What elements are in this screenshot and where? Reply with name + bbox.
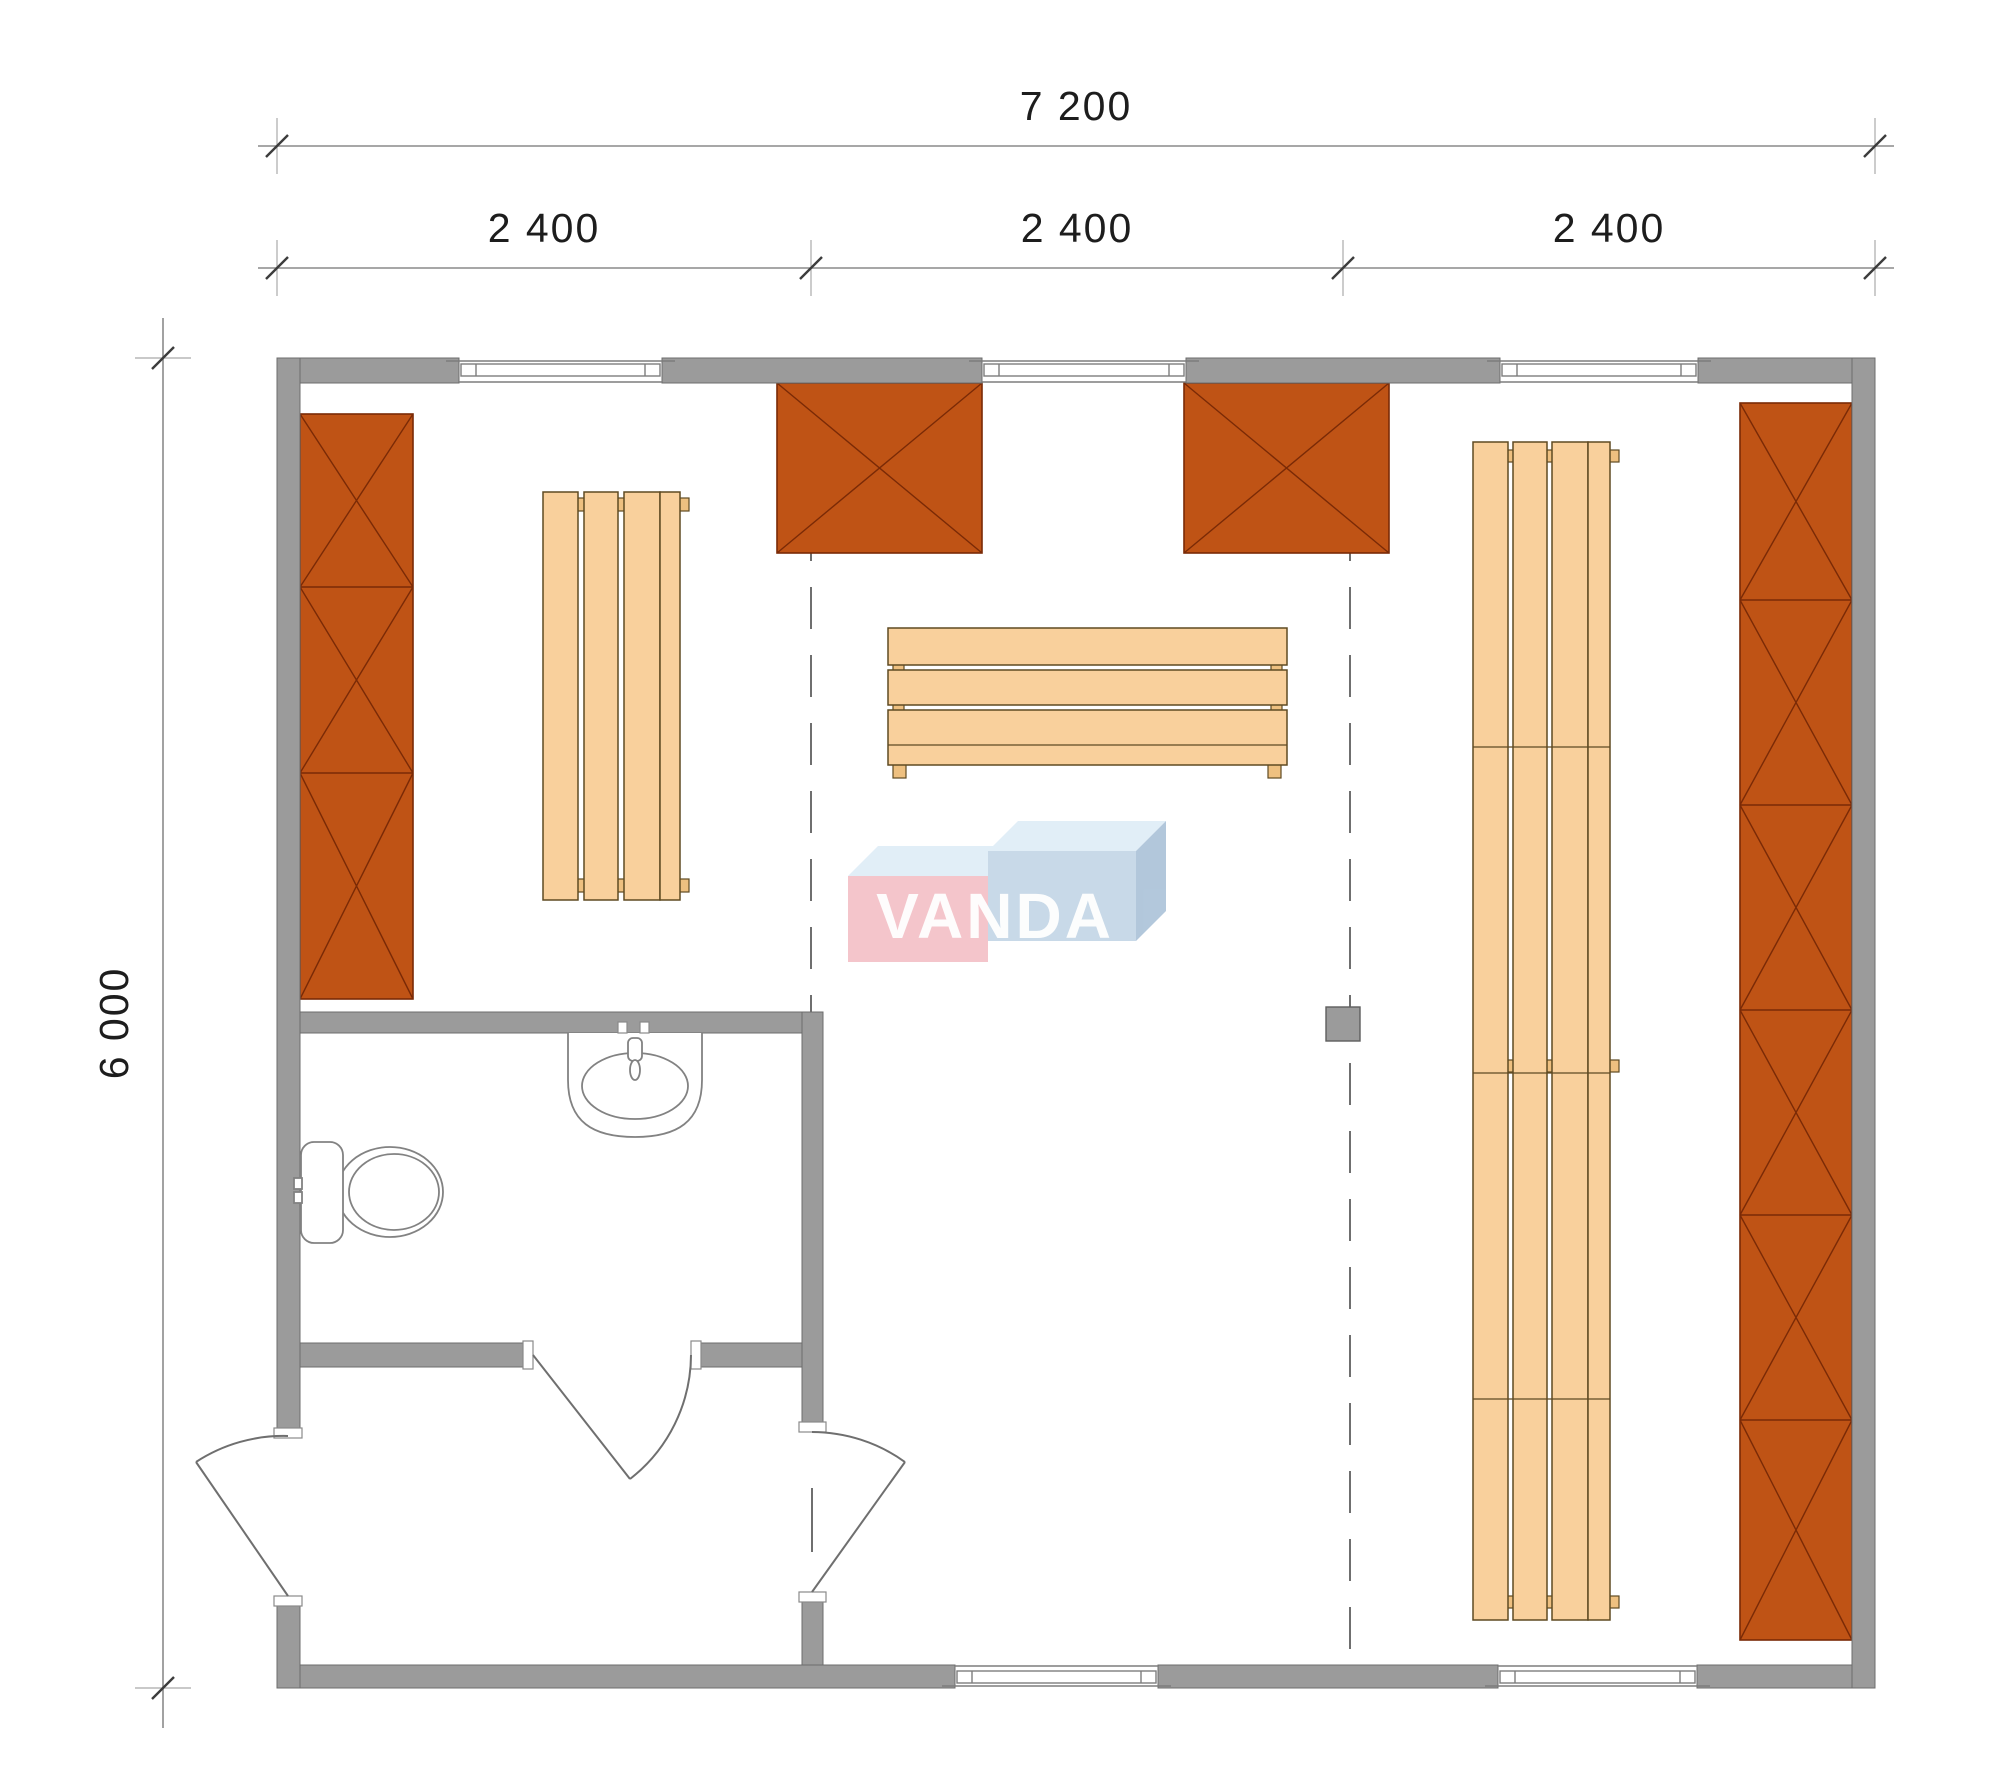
dimension-width-segments: 2 400 2 400 2 400 [258, 205, 1894, 296]
sink-tap-mark-1 [618, 1022, 627, 1033]
heater-box-1 [777, 383, 982, 553]
bench-left [543, 492, 689, 900]
sink-faucet-spout [630, 1060, 640, 1080]
dim-label-segment-1: 2 400 [488, 205, 601, 251]
window-bottom-2 [1485, 1666, 1710, 1686]
toilet-tank [301, 1142, 343, 1243]
wall-bathroom-bottom-left [300, 1343, 523, 1367]
jamb-entrance-bottom [274, 1596, 302, 1606]
stove-post [1326, 1007, 1360, 1041]
wall-partition-upper [802, 1012, 823, 1432]
wall-top-2 [662, 358, 982, 383]
wall-right [1852, 358, 1875, 1688]
toilet [294, 1142, 443, 1243]
wall-top-1 [277, 358, 459, 383]
sink [568, 1022, 702, 1137]
dim-label-total-width: 7 200 [1020, 83, 1133, 129]
exterior-door [196, 1436, 288, 1596]
dim-label-segment-2: 2 400 [1021, 205, 1134, 251]
wall-bathroom-top [300, 1012, 823, 1033]
wall-cabinet-right [1740, 403, 1852, 1640]
toilet-bowl-inner [349, 1154, 439, 1230]
wall-cabinet-left [300, 414, 413, 999]
doors [196, 1355, 905, 1596]
vestibule-door [812, 1432, 905, 1592]
wall-left-upper [277, 358, 300, 1438]
window-bottom-1 [942, 1666, 1171, 1686]
window-top-3 [1487, 361, 1711, 382]
wall-partition-lower [802, 1592, 823, 1665]
window-top-1 [446, 361, 675, 382]
logo-blue-box-top-face [988, 821, 1166, 851]
dim-label-segment-3: 2 400 [1553, 205, 1666, 251]
floor-plan-drawing: 7 200 2 400 2 400 2 400 6 000 [0, 0, 2000, 1786]
module-separation-lines [811, 383, 1350, 1665]
vanda-watermark-logo: VANDA [848, 821, 1166, 962]
toilet-flush-button-2 [294, 1192, 302, 1203]
floor-plan-page: 7 200 2 400 2 400 2 400 6 000 [0, 0, 2000, 1786]
interior-walls [274, 1012, 826, 1665]
wall-left-lower [277, 1596, 300, 1688]
bench-right [1473, 442, 1619, 1620]
wall-bathroom-bottom-right [701, 1343, 802, 1367]
jamb-vestibule-bottom [799, 1592, 826, 1602]
window-top-2 [969, 361, 1199, 382]
wall-bottom-1 [277, 1665, 955, 1688]
dimension-total-height: 6 000 [91, 318, 191, 1728]
bench-middle [888, 628, 1287, 778]
sink-faucet [628, 1038, 642, 1061]
heater-box-2 [1184, 383, 1389, 553]
wall-bottom-3 [1697, 1665, 1875, 1688]
dimension-total-width: 7 200 [258, 83, 1894, 174]
jamb-bathroom-left [523, 1341, 533, 1369]
wall-bottom-2 [1158, 1665, 1498, 1688]
logo-text: VANDA [876, 880, 1114, 952]
sink-tap-mark-2 [640, 1022, 649, 1033]
jamb-vestibule-top [799, 1422, 826, 1432]
toilet-flush-button-1 [294, 1178, 302, 1189]
bathroom-door [533, 1355, 691, 1479]
jamb-bathroom-right [691, 1341, 701, 1369]
dim-label-total-height: 6 000 [91, 967, 137, 1080]
wall-top-4 [1698, 358, 1875, 383]
wall-top-3 [1186, 358, 1500, 383]
